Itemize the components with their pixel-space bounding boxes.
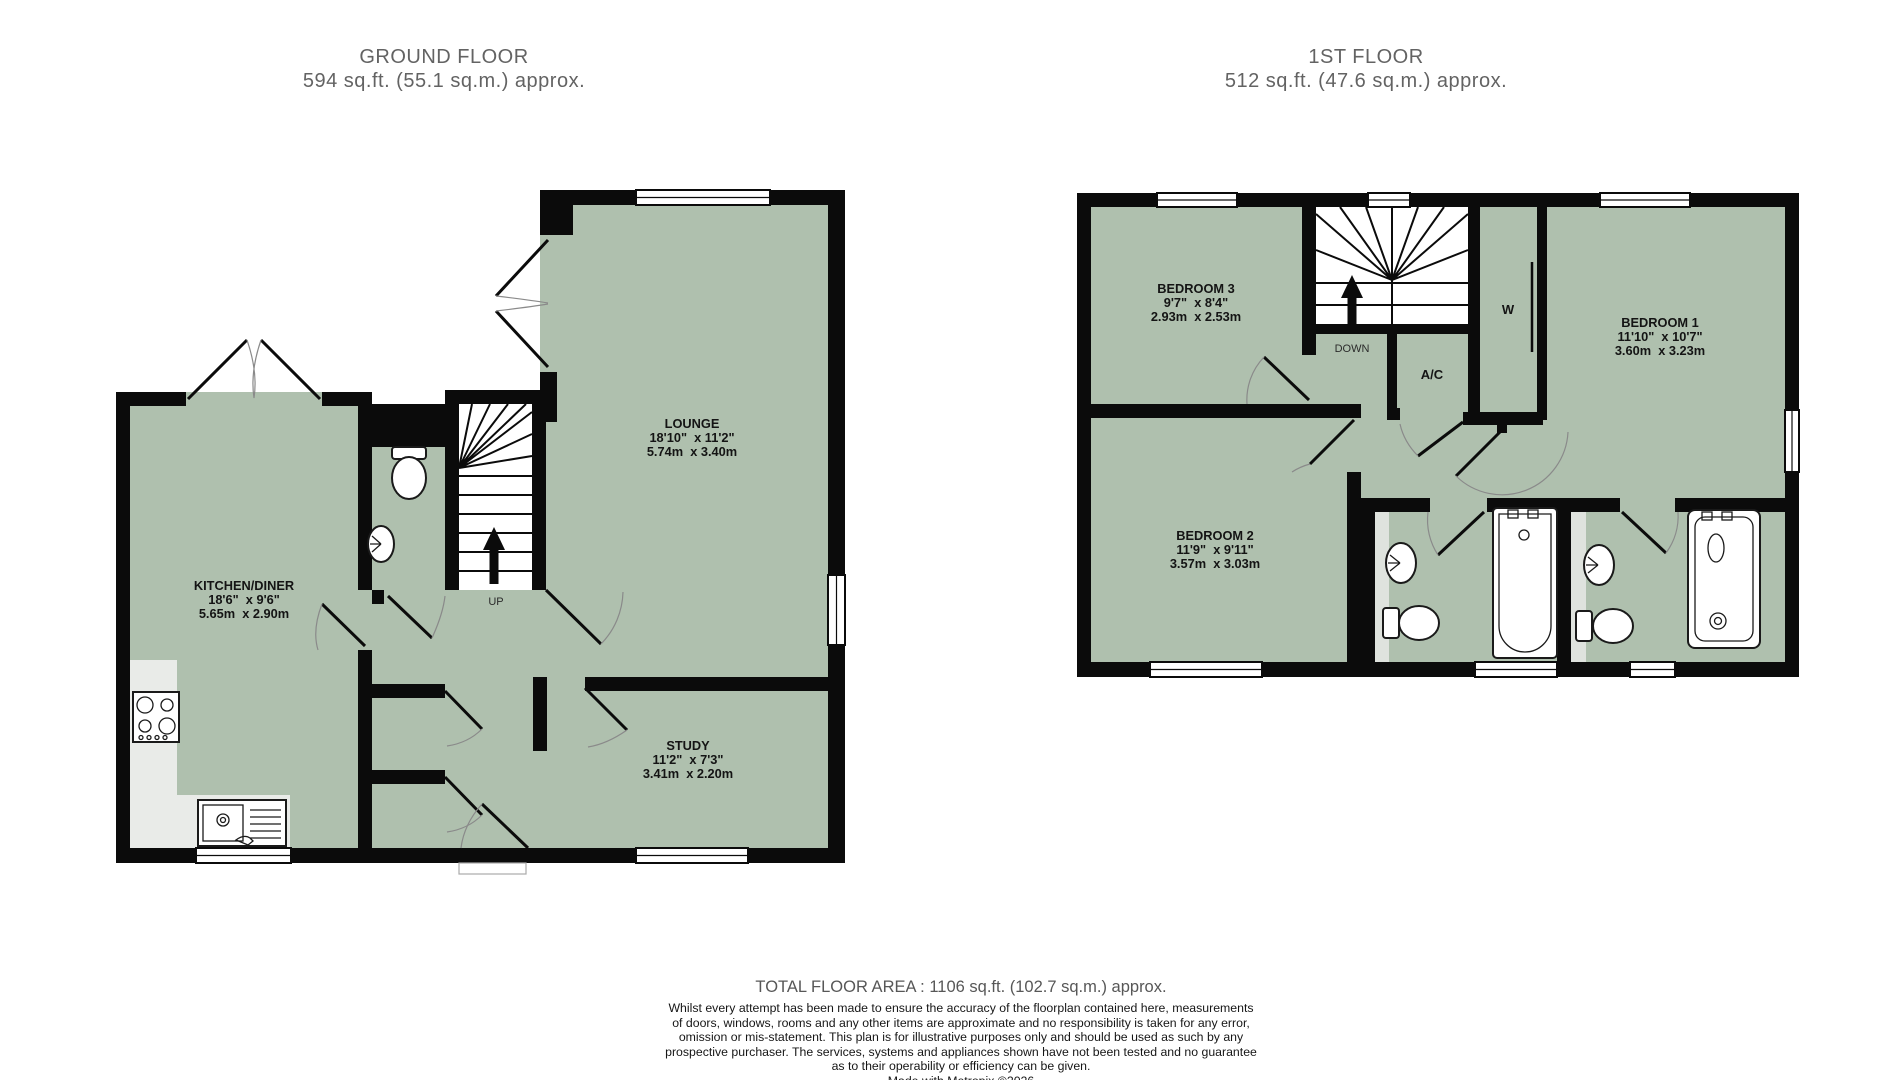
- lounge-label: LOUNGE: [665, 416, 720, 431]
- wardrobe-label: W: [1502, 302, 1515, 317]
- first-floor-plan: BEDROOM 3 9'7" x 8'4" 2.93m x 2.53m BEDR…: [1077, 193, 1799, 677]
- bedroom3-dim-metric: 2.93m x 2.53m: [1151, 309, 1241, 324]
- floorplan-page: GROUND FLOOR 594 sq.ft. (55.1 sq.m.) app…: [0, 0, 1891, 1080]
- window: [1157, 193, 1237, 207]
- bathtub-icon: [1493, 508, 1557, 658]
- kitchen-sink-icon: [198, 800, 286, 846]
- staircase-up: [459, 404, 532, 590]
- metropix-credit: Made with Metropix ©2026: [261, 1074, 1661, 1080]
- study-label: STUDY: [666, 738, 710, 753]
- window: [196, 848, 291, 863]
- bedroom2-dim-metric: 3.57m x 3.03m: [1170, 556, 1260, 571]
- study-dim-metric: 3.41m x 2.20m: [643, 766, 733, 781]
- floorplan-drawing: KITCHEN/DINER 18'6" x 9'6" 5.65m x 2.90m…: [0, 0, 1891, 1080]
- lounge-dim-imperial: 18'10" x 11'2": [649, 430, 734, 445]
- kitchen-dim-imperial: 18'6" x 9'6": [208, 592, 280, 607]
- toilet-icon: [1383, 606, 1439, 640]
- bathroom-strip: [1375, 512, 1389, 662]
- window: [1785, 410, 1799, 472]
- bedroom1-dim-metric: 3.60m x 3.23m: [1615, 343, 1705, 358]
- window: [1630, 662, 1675, 677]
- ground-floor-plan: KITCHEN/DINER 18'6" x 9'6" 5.65m x 2.90m…: [116, 190, 845, 874]
- staircase-down: [1316, 207, 1468, 331]
- bedroom1-label: BEDROOM 1: [1621, 315, 1699, 330]
- disclaimer-line: Whilst every attempt has been made to en…: [261, 1001, 1661, 1016]
- disclaimer: Whilst every attempt has been made to en…: [261, 1001, 1661, 1080]
- lounge-dim-metric: 5.74m x 3.40m: [647, 444, 737, 459]
- window: [1475, 662, 1557, 677]
- down-label: DOWN: [1335, 343, 1370, 355]
- sink-icon: [368, 526, 394, 562]
- toilet-icon: [392, 447, 426, 499]
- sink-icon: [1386, 543, 1416, 583]
- disclaimer-line: omission or mis-statement. This plan is …: [261, 1030, 1661, 1045]
- bedroom1-dim-imperial: 11'10" x 10'7": [1617, 329, 1702, 344]
- window: [636, 848, 748, 863]
- bedroom2-dim-imperial: 11'9" x 9'11": [1176, 542, 1253, 557]
- window: [1600, 193, 1690, 207]
- bedroom3-label: BEDROOM 3: [1157, 281, 1235, 296]
- disclaimer-line: prospective purchaser. The services, sys…: [261, 1045, 1661, 1060]
- hob-icon: [133, 692, 179, 742]
- porch-step: [459, 863, 526, 874]
- window: [1150, 662, 1262, 677]
- up-label: UP: [488, 596, 503, 608]
- total-floor-area: TOTAL FLOOR AREA : 1106 sq.ft. (102.7 sq…: [261, 978, 1661, 997]
- window: [828, 575, 845, 645]
- study-dim-imperial: 11'2" x 7'3": [653, 752, 724, 767]
- disclaimer-line: of doors, windows, rooms and any other i…: [261, 1016, 1661, 1031]
- bedroom2-label: BEDROOM 2: [1176, 528, 1254, 543]
- sink-icon: [1584, 545, 1614, 585]
- disclaimer-line: as to their operability or efficiency ca…: [261, 1059, 1661, 1074]
- bathtub-icon: [1688, 510, 1760, 648]
- window: [636, 190, 770, 205]
- patio-double-door: [188, 340, 320, 399]
- bedroom3-dim-imperial: 9'7" x 8'4": [1164, 295, 1228, 310]
- kitchen-dim-metric: 5.65m x 2.90m: [199, 606, 289, 621]
- window: [1368, 193, 1410, 207]
- toilet-icon: [1576, 609, 1633, 643]
- airing-cupboard-label: A/C: [1421, 367, 1444, 382]
- kitchen-label: KITCHEN/DINER: [194, 578, 294, 593]
